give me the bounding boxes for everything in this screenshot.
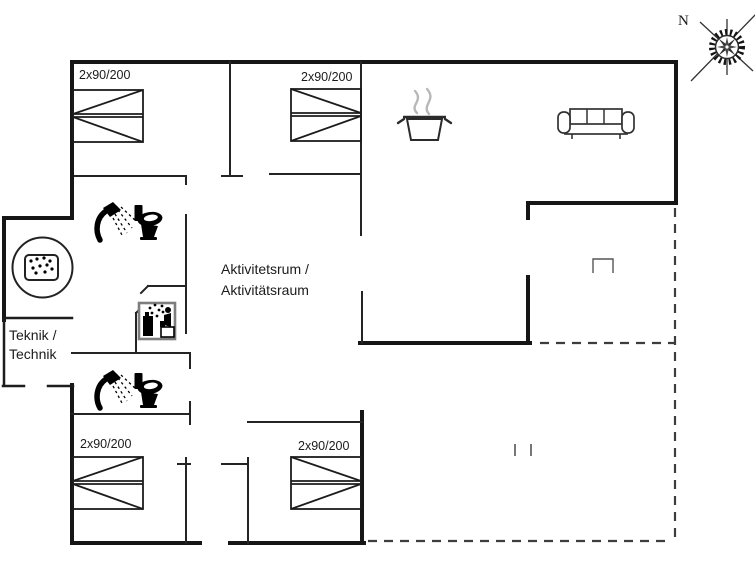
bed-bottom-left xyxy=(73,457,143,509)
floorplan: 2x90/200 2x90/200 2x90/200 2x90/200 Tekn… xyxy=(0,0,755,566)
technik-room-label-line2: Technik xyxy=(9,345,56,364)
bed-size-label-top-middle: 2x90/200 xyxy=(301,70,352,84)
bed-top-left xyxy=(73,90,143,142)
floorplan-canvas xyxy=(0,0,755,566)
north-label: N xyxy=(678,13,689,30)
whirlpool-icon xyxy=(13,238,73,298)
technik-room-label-line1: Teknik / xyxy=(9,326,56,345)
activity-room-label-line1: Aktivitetsrum / xyxy=(221,259,309,280)
toilet-icon-bathroom1 xyxy=(135,205,164,240)
terrace-bracket xyxy=(593,259,613,273)
terrace-dashed-outline xyxy=(368,208,675,541)
bed-size-label-bottom-left: 2x90/200 xyxy=(80,437,131,451)
washing-machine-icon xyxy=(139,303,175,339)
activity-room-label: Aktivitetsrum / Aktivitätsraum xyxy=(221,259,309,301)
shower-icon-bathroom1 xyxy=(97,202,137,240)
bed-size-label-bottom-middle: 2x90/200 xyxy=(298,439,349,453)
terrace-marks xyxy=(515,444,531,456)
bed-bottom-middle xyxy=(291,457,361,509)
technik-room-label: Teknik / Technik xyxy=(9,326,56,364)
interior-walls xyxy=(72,62,362,543)
shower-icon-bathroom2 xyxy=(97,370,137,408)
activity-room-label-line2: Aktivitätsraum xyxy=(221,280,309,301)
compass-rose-icon xyxy=(691,13,755,81)
sofa-icon xyxy=(558,109,634,139)
bed-top-middle xyxy=(291,89,361,141)
cooking-pot-icon xyxy=(398,117,451,140)
bed-size-label-top-left: 2x90/200 xyxy=(79,68,130,82)
steam-icon xyxy=(415,89,431,114)
toilet-icon-bathroom2 xyxy=(135,373,164,408)
